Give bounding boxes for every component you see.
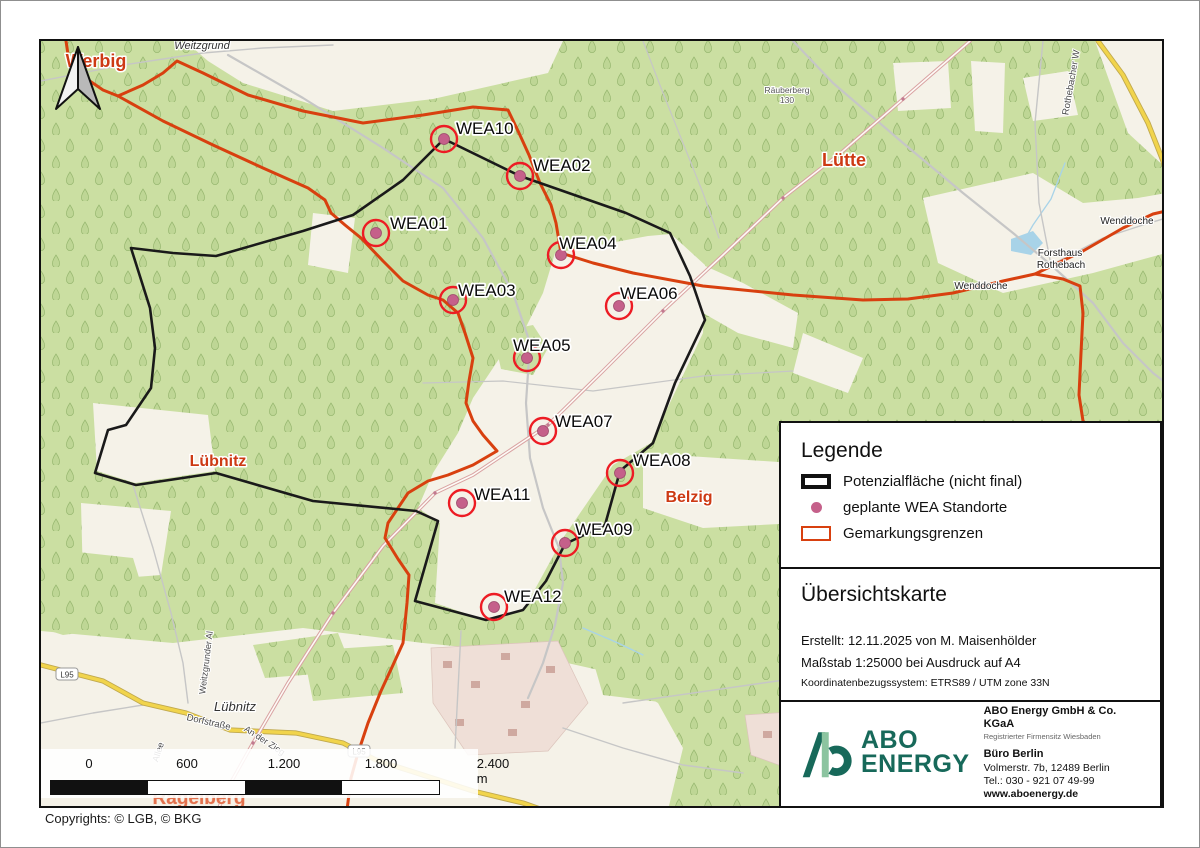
open-field-area	[93, 403, 215, 483]
wea-marker-label: WEA08	[633, 451, 691, 470]
company-registered: Registrierter Firmensitz Wiesbaden	[984, 732, 1140, 741]
wea-marker-label: WEA06	[620, 284, 678, 303]
red-rect-swatch	[801, 526, 834, 541]
map-label: Lütte	[822, 150, 866, 170]
company-website: www.aboenergy.de	[984, 788, 1140, 801]
wea-marker-label: WEA11	[474, 485, 530, 504]
title-box: Übersichtskarte Erstellt: 12.11.2025 von…	[781, 569, 1160, 702]
wea-marker-label: WEA05	[513, 336, 571, 355]
created-line: Erstellt: 12.11.2025 von M. Maisenhölder	[801, 633, 1140, 648]
wea-marker-label: WEA03	[458, 281, 516, 300]
map-label: Forsthaus	[1038, 248, 1082, 259]
wea-marker-label: WEA02	[533, 156, 591, 175]
map-label: Rothebach	[1037, 260, 1085, 271]
map-label: Lübnitz	[190, 453, 247, 470]
legend-title: Legende	[801, 423, 1140, 463]
legend-item-potenzialflaeche: Potenzialfläche (nicht final)	[801, 473, 1140, 490]
map-label: Weitzgrund	[174, 41, 230, 52]
map-label: Wenddoche	[1100, 216, 1154, 227]
copyright-text: Copyrights: © LGB, © BKG	[45, 811, 201, 826]
scale-label-0: 0	[85, 756, 92, 771]
open-field-area	[971, 61, 1005, 133]
map-label: Belzig	[665, 489, 712, 506]
scale-label-600: 600	[176, 756, 198, 771]
info-panel: Legende Potenzialfläche (nicht final) ge…	[779, 421, 1162, 808]
open-field-area	[893, 61, 951, 111]
wea-marker-label: WEA04	[559, 234, 617, 253]
scale-line: Maßstab 1:25000 bei Ausdruck auf A4	[801, 655, 1140, 670]
building	[521, 701, 530, 708]
map-label: 130	[780, 95, 794, 105]
page-title: Übersichtskarte	[801, 569, 1140, 607]
scale-bar: 0 600 1.200 1.800 2.400 m	[41, 749, 478, 798]
wea-marker-label: WEA12	[504, 587, 562, 606]
company-tel: Tel.: 030 - 921 07 49-99	[984, 775, 1140, 788]
crs-line: Koordinatenbezugssystem: ETRS89 / UTM zo…	[801, 677, 1140, 689]
company-name: ABO Energy GmbH & Co. KGaA	[984, 705, 1140, 733]
building	[763, 731, 772, 738]
building	[471, 681, 480, 688]
company-street: Volmerstr. 7b, 12489 Berlin	[984, 762, 1140, 775]
abo-energy-logo-icon	[801, 724, 853, 782]
black-rect-swatch	[801, 474, 834, 489]
building	[546, 666, 555, 673]
legend-box: Legende Potenzialfläche (nicht final) ge…	[781, 423, 1160, 569]
svg-text:L95: L95	[60, 671, 74, 680]
map-label: Wenddoche	[954, 281, 1008, 292]
abo-energy-logo: ABO ENERGY	[801, 724, 970, 782]
pink-dot-swatch	[801, 502, 834, 513]
print-layout-page: WEA01WEA02WEA03WEA04WEA05WEA06WEA07WEA08…	[0, 0, 1200, 848]
abo-energy-wordmark: ABO ENERGY	[861, 729, 970, 777]
wea-marker-label: WEA01	[390, 214, 448, 233]
scale-label-1200: 1.200	[268, 756, 301, 771]
wea-marker-label: WEA07	[555, 412, 613, 431]
company-box: ABO ENERGY ABO Energy GmbH & Co. KGaA Re…	[781, 702, 1160, 804]
company-office: Büro Berlin	[984, 748, 1140, 762]
scale-label-1800: 1.800	[365, 756, 398, 771]
map-label: Räuberberg	[765, 85, 810, 95]
company-address: ABO Energy GmbH & Co. KGaA Registrierter…	[984, 705, 1140, 802]
scale-label-2400: 2.400 m	[477, 756, 510, 786]
building	[443, 661, 452, 668]
legend-item-gemarkungsgrenzen: Gemarkungsgrenzen	[801, 525, 1140, 542]
building	[501, 653, 510, 660]
wea-marker-label: WEA09	[575, 520, 633, 539]
building	[508, 729, 517, 736]
scale-bar-segments	[50, 780, 440, 795]
wea-marker-label: WEA10	[456, 119, 514, 138]
legend-item-wea-standorte: geplante WEA Standorte	[801, 499, 1140, 516]
map-label: Lübnitz	[214, 699, 256, 714]
